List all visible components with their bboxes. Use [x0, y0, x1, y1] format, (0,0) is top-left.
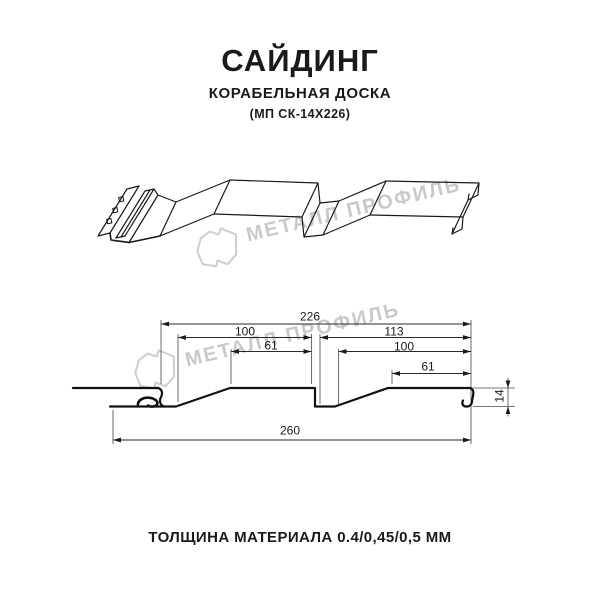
product-code: (МП СК-14Х226) — [0, 107, 600, 121]
dim-label-profile-height: 14 — [494, 389, 507, 402]
profile-3d-drawing — [80, 150, 500, 280]
dim-label-overall-width: 260 — [280, 425, 300, 438]
dim-label-right-panel-top: 61 — [421, 361, 434, 374]
catalog-product-sheet: САЙДИНГ КОРАБЕЛЬНАЯ ДОСКА (МП СК-14Х226)… — [0, 0, 600, 600]
dim-label-left-panel-top: 61 — [264, 340, 277, 353]
dim-label-right-panel: 100 — [394, 341, 414, 354]
dim-label-cover-width: 226 — [300, 311, 320, 324]
header: САЙДИНГ КОРАБЕЛЬНАЯ ДОСКА (МП СК-14Х226) — [0, 44, 600, 121]
dim-label-right-group: 113 — [384, 326, 403, 339]
thickness-note: ТОЛЩИНА МАТЕРИАЛА 0.4/0,45/0,5 ММ — [0, 529, 600, 546]
product-subtitle: КОРАБЕЛЬНАЯ ДОСКА — [0, 85, 600, 102]
dim-label-left-panel: 100 — [235, 326, 255, 339]
product-title: САЙДИНГ — [0, 44, 600, 78]
